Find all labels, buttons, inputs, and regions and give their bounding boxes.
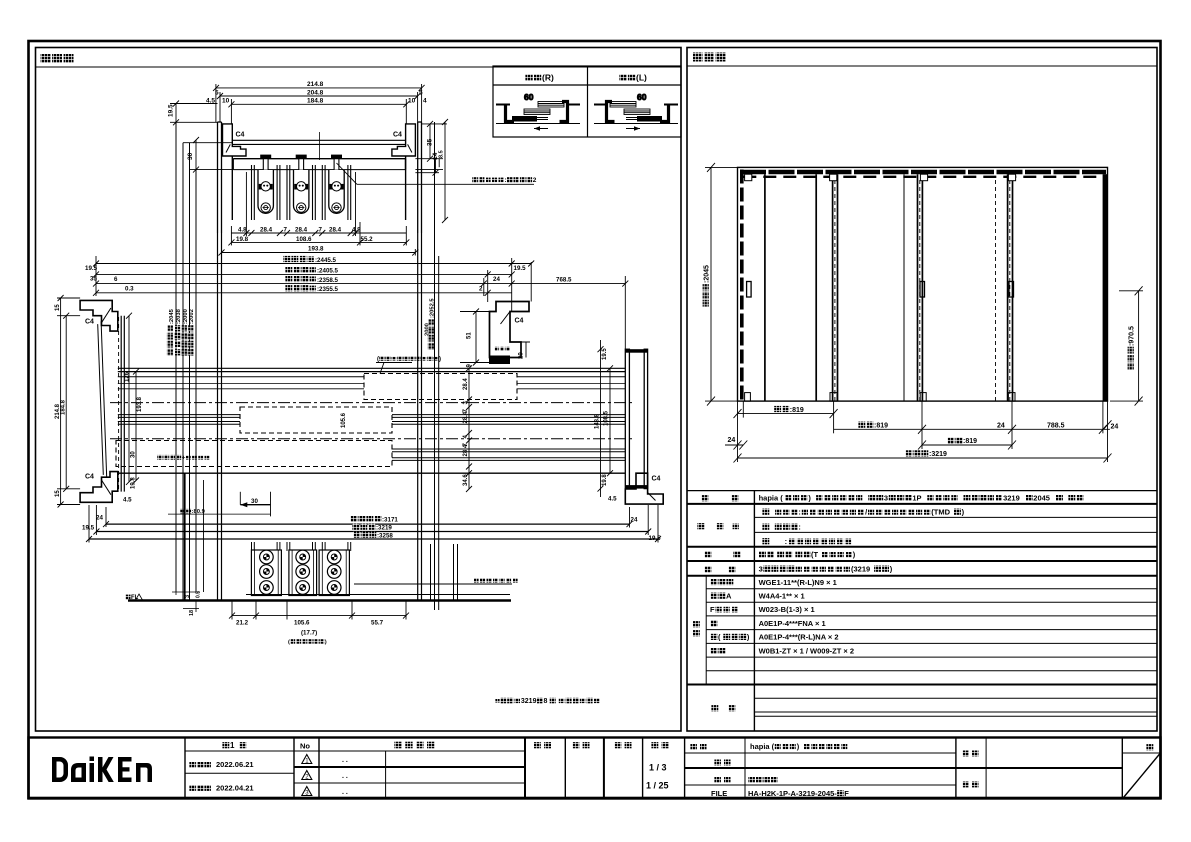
svg-text:108.5: 108.5 xyxy=(604,410,610,426)
svg-text:105.6: 105.6 xyxy=(341,412,347,428)
svg-text:30: 30 xyxy=(187,152,194,160)
svg-text:24: 24 xyxy=(493,276,500,283)
svg-text:hapia (: hapia ( xyxy=(750,742,775,751)
svg-text:WGE1-11**(R-L)N9 × 1: WGE1-11**(R-L)N9 × 1 xyxy=(759,578,837,587)
svg-text::: : xyxy=(798,508,801,517)
svg-text:51: 51 xyxy=(467,332,473,339)
svg-text::: : xyxy=(505,177,507,184)
svg-text:3219: 3219 xyxy=(521,698,537,705)
svg-text:768.5: 768.5 xyxy=(556,277,572,284)
svg-text:W0B1-ZT × 1 / W009-ZT × 2: W0B1-ZT × 1 / W009-ZT × 2 xyxy=(759,646,854,655)
svg-text:7: 7 xyxy=(319,227,323,234)
svg-text:28.4: 28.4 xyxy=(260,227,273,234)
svg-text:30: 30 xyxy=(131,451,137,458)
svg-text:55.2: 55.2 xyxy=(361,236,374,243)
svg-text:30: 30 xyxy=(251,498,258,505)
svg-text:3: 3 xyxy=(185,595,191,598)
svg-text:): ) xyxy=(439,357,441,363)
svg-text:. .: . . xyxy=(342,757,348,764)
svg-text:hapia (: hapia ( xyxy=(759,494,784,503)
svg-text::3219: :3219 xyxy=(376,525,392,532)
svg-text:19.5: 19.5 xyxy=(514,265,527,272)
svg-text:21.2: 21.2 xyxy=(236,620,249,627)
svg-text:5: 5 xyxy=(419,89,423,96)
svg-text::2045: :2045 xyxy=(169,308,175,324)
svg-text:(: ( xyxy=(377,357,379,363)
svg-text:FILE: FILE xyxy=(711,789,727,798)
svg-text:148.8: 148.8 xyxy=(595,413,601,429)
svg-text:C4: C4 xyxy=(652,476,661,483)
svg-text::819: :819 xyxy=(963,438,977,445)
svg-text:193.8: 193.8 xyxy=(308,246,324,253)
svg-text:A: A xyxy=(726,592,732,601)
svg-text::2002: :2002 xyxy=(189,309,195,324)
svg-text:1P: 1P xyxy=(912,494,921,503)
svg-text:C4: C4 xyxy=(393,132,402,139)
svg-text:8: 8 xyxy=(544,698,548,705)
svg-text::2445.5: :2445.5 xyxy=(315,257,337,264)
svg-text:2: 2 xyxy=(479,285,483,292)
svg-text:4.8: 4.8 xyxy=(352,227,361,234)
svg-text:19.5: 19.5 xyxy=(168,104,175,117)
svg-text::: : xyxy=(770,537,787,546)
svg-text:(T: (T xyxy=(811,550,818,559)
svg-text:35: 35 xyxy=(427,138,434,146)
svg-text:6: 6 xyxy=(114,276,118,283)
svg-text:4.5: 4.5 xyxy=(123,497,132,504)
svg-text:2022.04.21: 2022.04.21 xyxy=(216,784,254,793)
svg-text:19.8: 19.8 xyxy=(602,474,608,486)
svg-text:126: 126 xyxy=(124,371,130,382)
svg-text::2045: :2045 xyxy=(704,265,711,283)
svg-text::970.5: :970.5 xyxy=(1129,326,1136,346)
svg-text:19.5: 19.5 xyxy=(649,535,662,542)
svg-text:788.5: 788.5 xyxy=(1047,423,1065,430)
svg-text:W4A4-1** × 1: W4A4-1** × 1 xyxy=(759,592,805,601)
svg-text:24: 24 xyxy=(728,437,736,444)
svg-text:24: 24 xyxy=(1111,424,1119,431)
svg-text::2358.5: :2358.5 xyxy=(317,277,339,284)
svg-text::819: :819 xyxy=(790,407,804,414)
svg-text:C4: C4 xyxy=(85,474,94,481)
svg-text:8.5: 8.5 xyxy=(439,150,445,158)
svg-text:. .: . . xyxy=(342,773,348,780)
svg-text:C4: C4 xyxy=(236,132,245,139)
svg-text:A0E1P-4***(R-L)NA × 2: A0E1P-4***(R-L)NA × 2 xyxy=(759,633,839,642)
svg-text:19.8: 19.8 xyxy=(131,477,137,489)
svg-text:24: 24 xyxy=(997,423,1005,430)
svg-text:W023-B(1-3) × 1: W023-B(1-3) × 1 xyxy=(759,605,815,614)
svg-text::2038: :2038 xyxy=(176,308,182,324)
svg-text:15: 15 xyxy=(55,490,61,497)
svg-text:24: 24 xyxy=(96,515,103,522)
svg-text::2052.5: :2052.5 xyxy=(430,298,436,318)
svg-text:24: 24 xyxy=(631,517,638,524)
svg-text::2355.5: :2355.5 xyxy=(317,286,339,293)
svg-text:5: 5 xyxy=(215,89,219,96)
svg-text:): ) xyxy=(325,640,327,646)
svg-text::2405.5: :2405.5 xyxy=(317,268,339,275)
svg-text:F: F xyxy=(844,789,849,798)
svg-text:HA-H2K-1P-A-3219-2045-: HA-H2K-1P-A-3219-2045- xyxy=(748,789,837,798)
svg-text::2000: :2000 xyxy=(183,309,189,324)
svg-text:(17.7): (17.7) xyxy=(301,630,317,637)
svg-text:105.6: 105.6 xyxy=(294,620,310,627)
svg-text:2022.06.21: 2022.06.21 xyxy=(216,760,254,769)
svg-text:15: 15 xyxy=(55,304,61,311)
svg-text:10: 10 xyxy=(222,98,230,105)
svg-text:(R): (R) xyxy=(542,73,554,83)
svg-text:4: 4 xyxy=(423,98,427,105)
svg-text:19.5: 19.5 xyxy=(602,348,608,360)
svg-text:0.5: 0.5 xyxy=(196,591,202,598)
svg-text:(: ( xyxy=(288,640,290,646)
svg-text::: : xyxy=(798,523,801,532)
svg-text::819: :819 xyxy=(874,423,888,430)
svg-text:19.5: 19.5 xyxy=(85,265,98,272)
svg-text:28.4: 28.4 xyxy=(329,227,342,234)
svg-text:193.8: 193.8 xyxy=(137,396,143,412)
svg-text:F: F xyxy=(710,605,715,614)
svg-text:19.5: 19.5 xyxy=(82,525,95,532)
svg-text:18: 18 xyxy=(189,610,195,616)
svg-text:20: 20 xyxy=(519,352,525,359)
svg-text:0.3: 0.3 xyxy=(125,285,134,292)
svg-text:No: No xyxy=(300,742,310,751)
svg-text:214.8: 214.8 xyxy=(307,81,324,88)
svg-text:(3219: (3219 xyxy=(851,565,870,574)
svg-text:28.4: 28.4 xyxy=(463,444,469,456)
svg-text:(L): (L) xyxy=(636,73,647,83)
svg-text::3171: :3171 xyxy=(382,517,398,524)
svg-text:A0E1P-4***FNA × 1: A0E1P-4***FNA × 1 xyxy=(759,619,826,628)
svg-text:. .: . . xyxy=(342,789,348,796)
svg-text:1 / 25: 1 / 25 xyxy=(646,781,669,791)
svg-text:28.4: 28.4 xyxy=(295,227,308,234)
svg-text:2: 2 xyxy=(533,177,537,184)
svg-text:60: 60 xyxy=(637,92,647,102)
svg-text:3219: 3219 xyxy=(1003,494,1020,503)
svg-text:7: 7 xyxy=(284,227,288,234)
svg-text:3: 3 xyxy=(884,494,888,503)
svg-text::3258: :3258 xyxy=(377,533,393,540)
svg-text:C4: C4 xyxy=(85,319,94,326)
svg-text:184.8: 184.8 xyxy=(307,98,324,105)
svg-text:2045: 2045 xyxy=(1033,494,1050,503)
svg-text:C4: C4 xyxy=(515,318,524,325)
svg-text:108.6: 108.6 xyxy=(296,236,312,243)
svg-text:35: 35 xyxy=(90,276,97,283)
svg-text::3219: :3219 xyxy=(929,451,947,458)
svg-text:55.7: 55.7 xyxy=(371,620,384,627)
svg-text:1 / 3: 1 / 3 xyxy=(649,763,667,773)
svg-text:60: 60 xyxy=(524,92,534,102)
svg-text:204.8: 204.8 xyxy=(307,89,324,96)
svg-text:19.8: 19.8 xyxy=(236,236,249,243)
svg-text:10: 10 xyxy=(408,98,416,105)
svg-text:3: 3 xyxy=(759,565,763,574)
svg-text:4.8: 4.8 xyxy=(238,227,247,234)
svg-text:34.6: 34.6 xyxy=(463,474,469,486)
svg-text:184.8: 184.8 xyxy=(60,399,66,415)
svg-text:(TMD: (TMD xyxy=(931,508,950,517)
svg-text:4.5: 4.5 xyxy=(608,496,617,503)
svg-text:1: 1 xyxy=(230,741,235,750)
svg-text:28.4: 28.4 xyxy=(463,378,469,390)
svg-text:28.4: 28.4 xyxy=(463,411,469,423)
svg-text:+: + xyxy=(182,455,186,462)
